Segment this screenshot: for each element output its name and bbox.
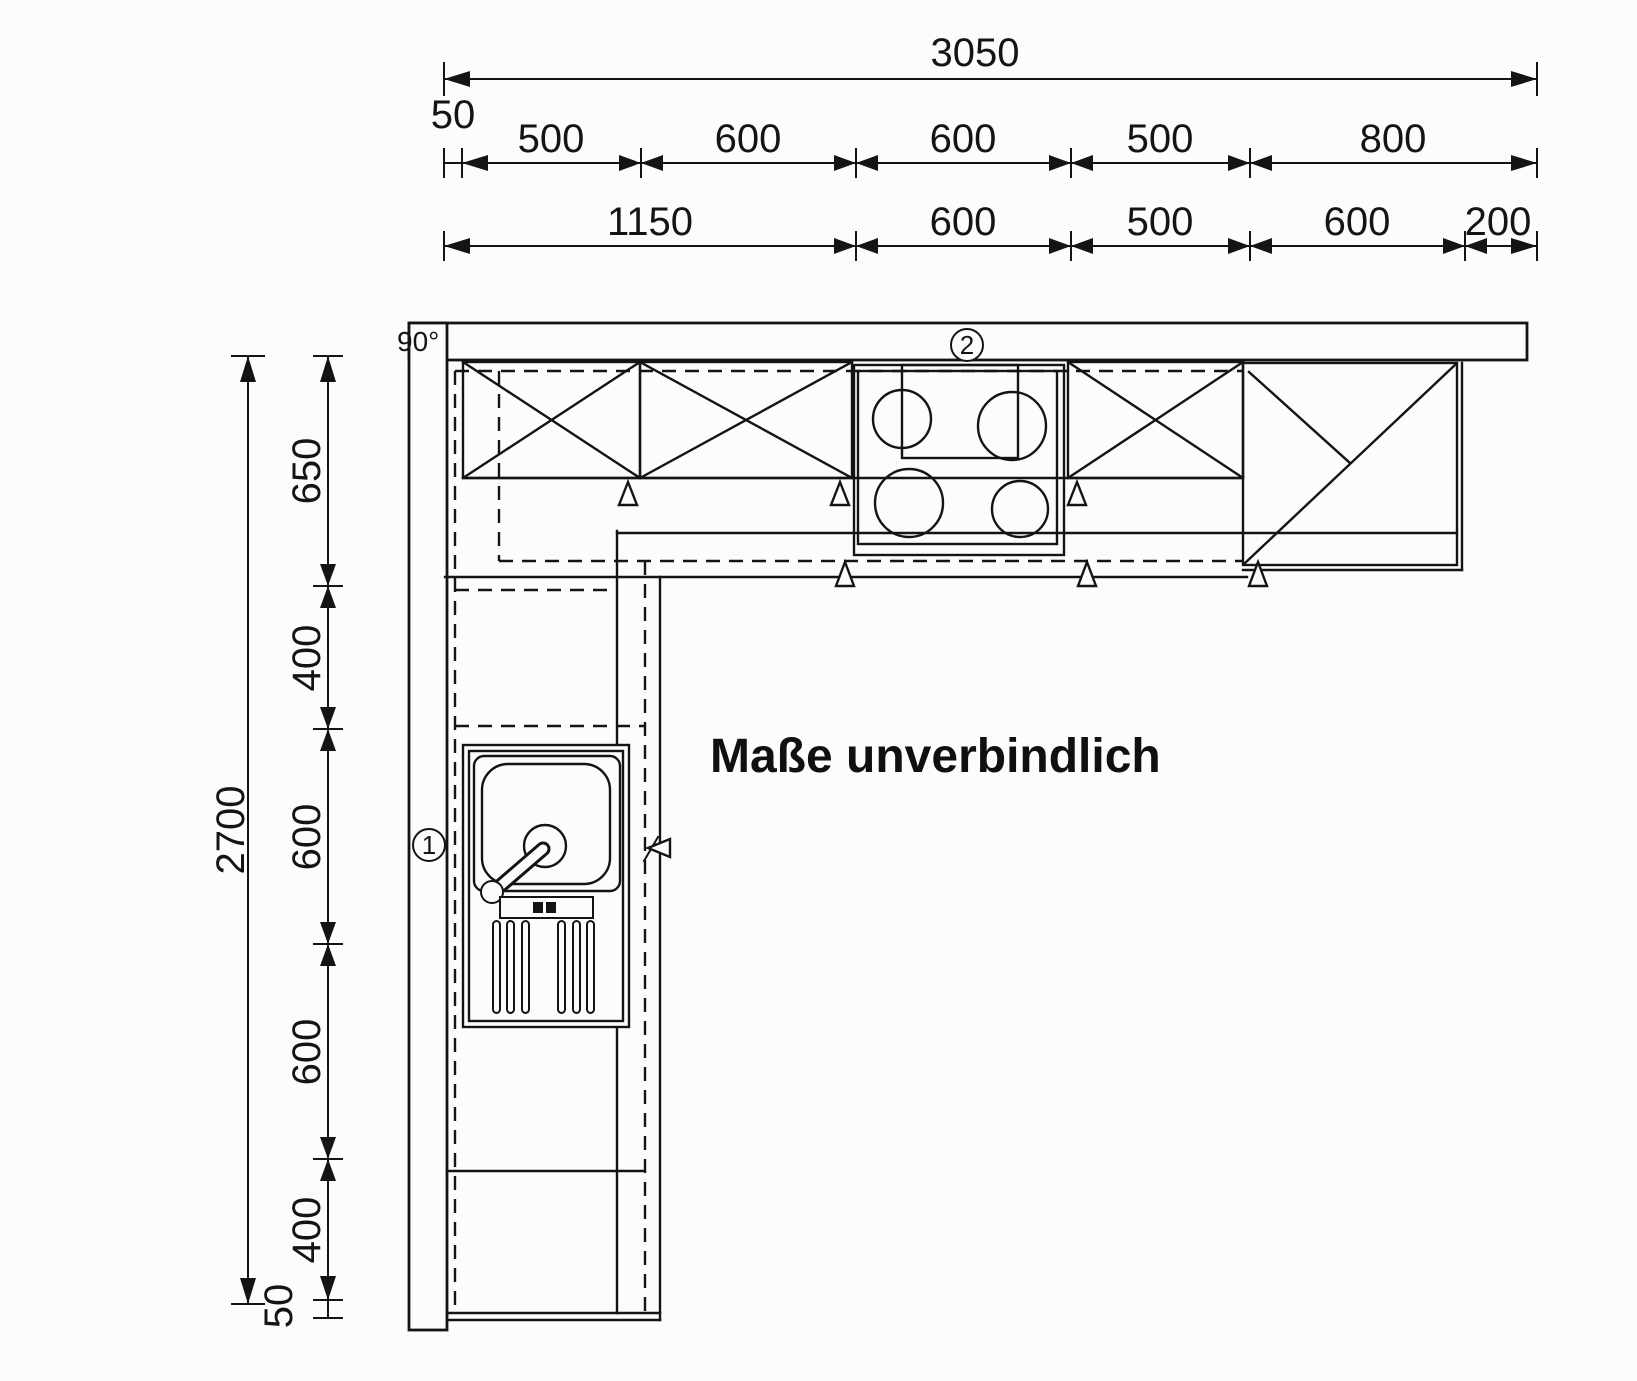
dim-col-total-height: 2700 xyxy=(209,356,264,1304)
dim-segment-label: 600 xyxy=(930,117,997,161)
sink-unit xyxy=(463,745,629,1027)
dim-segment-label: 1150 xyxy=(607,200,693,244)
burner xyxy=(992,481,1048,537)
burner xyxy=(978,392,1046,460)
dim-wall-offset-label: 50 xyxy=(431,93,476,137)
dim-segment-label: 600 xyxy=(715,117,782,161)
wall-cabinet-left xyxy=(463,362,640,478)
sink-door-swing-marker xyxy=(644,837,670,861)
note-text: Maße unverbindlich xyxy=(710,730,1161,783)
wall-cabinet-right xyxy=(1068,362,1243,478)
floor-plan: 90° xyxy=(397,323,1527,1330)
dim-total-height-label: 2700 xyxy=(209,786,253,875)
dim-segment-label: 600 xyxy=(930,200,997,244)
dim-segment-label: 500 xyxy=(518,117,585,161)
corner-cabinet xyxy=(1243,363,1462,570)
dim-segment-label: 500 xyxy=(1127,117,1194,161)
position-marker-1-label: 1 xyxy=(422,830,436,860)
corner-angle-label: 90° xyxy=(397,326,439,357)
dim-segment-label: 500 xyxy=(1127,200,1194,244)
dim-total-width-label: 3050 xyxy=(931,31,1020,75)
dim-segment-label: 200 xyxy=(1465,200,1532,244)
dim-segment-label: 600 xyxy=(1324,200,1391,244)
wall-cabinet-middle xyxy=(640,362,852,478)
dim-segment-label: 600 xyxy=(285,1019,329,1086)
kitchen-plan-page: 3050 50 500 600 600 500 800 xyxy=(0,0,1637,1381)
wall-left xyxy=(409,323,447,1330)
dim-segment-label: 400 xyxy=(285,625,329,692)
hob-upper-module xyxy=(902,365,1018,458)
position-marker-2-label: 2 xyxy=(960,330,974,360)
dim-row-total-width: 3050 xyxy=(444,31,1537,95)
position-marker-1: 1 xyxy=(413,829,445,861)
dim-segment-label: 650 xyxy=(285,438,329,505)
kitchen-plan-drawing: 3050 50 500 600 600 500 800 xyxy=(0,0,1637,1381)
position-marker-2: 2 xyxy=(951,329,983,361)
dim-segment-label: 50 xyxy=(257,1284,301,1329)
hob xyxy=(854,365,1064,555)
dim-row-lower: 1150 600 500 600 200 xyxy=(444,200,1537,260)
dim-segment-label: 800 xyxy=(1360,117,1427,161)
dim-col-segments: 650 400 600 600 400 50 xyxy=(257,356,342,1328)
dim-row-upper: 500 600 600 500 800 xyxy=(444,117,1537,177)
door-hinge-markers xyxy=(619,482,1267,861)
dim-segment-label: 600 xyxy=(285,804,329,871)
dim-segment-label: 400 xyxy=(285,1197,329,1264)
